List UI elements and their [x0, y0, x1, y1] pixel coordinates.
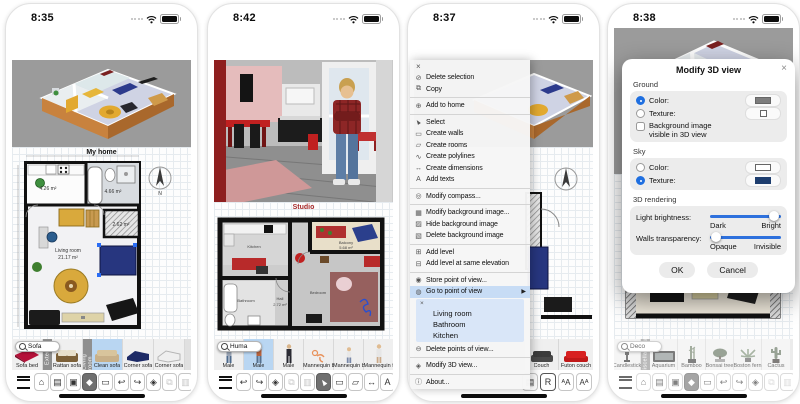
catalog-item-couch[interactable]: Couch	[525, 339, 559, 370]
plan-title: Studio	[214, 204, 393, 211]
kitchen-area-label: 4.26 m²	[40, 186, 57, 192]
battery-icon	[762, 14, 781, 24]
delete-selection-icon: ⊘	[414, 74, 423, 82]
catalog-item-label: Sofa bed	[16, 363, 38, 369]
undo-icon[interactable]: ↩	[716, 373, 731, 391]
phone-screenshot-3: 8:37 Couch	[407, 3, 600, 402]
bottom-toolbar: ⌂ ▤ ▣ ◆ ▭ ↩ ↪ ◈ ⧉ ▥	[12, 371, 191, 393]
menu-item-create-rooms[interactable]: ▱Create rooms	[410, 140, 530, 152]
menu-item-delete-points-of-view[interactable]: ⊖Delete points of view...	[410, 344, 530, 356]
sky-texture-radio[interactable]	[636, 176, 645, 185]
catalog-item-mannequin-baby[interactable]: Mannequin baby	[304, 339, 334, 370]
increase-text-size-icon[interactable]: Aᴬ	[576, 373, 592, 391]
catalog-item-label: Male	[223, 363, 235, 369]
catalog-item-corner-sofa-white[interactable]: Corner sofa	[154, 339, 185, 370]
ground-section: Color: Texture: Background image visible…	[630, 91, 787, 142]
clock: 8:35	[31, 12, 54, 24]
photo-icon[interactable]: ▣	[668, 373, 683, 391]
sky-color-swatch	[755, 164, 771, 171]
redo-icon[interactable]: ↪	[252, 373, 267, 391]
paste-icon: ▥	[300, 373, 315, 391]
futon-couch-thumbnail	[563, 344, 589, 363]
create-rooms-icon[interactable]: ▱	[348, 373, 363, 391]
home-indicator[interactable]	[59, 394, 145, 398]
menu-item-hide-background-image[interactable]: ▨Hide background image	[410, 219, 530, 231]
catalog-item-mannequin-female[interactable]: Mannequin female	[364, 339, 393, 370]
status-bar: 8:37	[408, 11, 599, 27]
menu-item-label: Create dimensions	[426, 165, 483, 172]
text-style-icon[interactable]: R	[540, 373, 556, 391]
status-bar: 8:42	[208, 11, 399, 27]
catalog-item-cactus[interactable]: Cactus	[762, 339, 790, 370]
context-menu: × ⊘Delete selection ⧉Copy ⊕Add to home ▲…	[410, 60, 530, 389]
3d-room-render	[214, 60, 392, 202]
cancel-button[interactable]: Cancel	[707, 262, 757, 278]
cactus-thumbnail	[770, 344, 782, 363]
mannequin-female-thumbnail	[374, 344, 384, 363]
bonsai-tree-thumbnail	[711, 344, 729, 363]
dialog-close-icon[interactable]: ×	[781, 64, 787, 74]
floor-plan-drawing: N 4.26 m² 4.66 m² 2.62 m² Living room 21…	[12, 147, 190, 339]
menu-item-add-texts[interactable]: AAdd texts	[410, 174, 530, 186]
transparency-max-label: Invisible	[754, 242, 781, 251]
clock: 8:38	[633, 12, 656, 24]
menu-item-create-walls[interactable]: ▭Create walls	[410, 128, 530, 140]
modify-3d-view-dialog: Modify 3D view × Ground Color: Texture: …	[622, 59, 795, 293]
wifi-icon	[348, 15, 359, 24]
ground-texture-swatch	[760, 110, 767, 117]
create-rooms-icon: ▱	[414, 141, 423, 149]
menu-separator	[410, 272, 530, 273]
furniture-catalog: Sofa Sofa bed Exterior Rattan sofa Livin…	[12, 339, 191, 370]
menu-item-label: Store point of view...	[426, 277, 487, 284]
cellular-signal-icon	[533, 18, 546, 20]
search-icon	[621, 343, 628, 350]
clock: 8:42	[233, 12, 256, 24]
wifi-icon	[548, 15, 559, 24]
catalog-item-futon-couch[interactable]: Futon couch	[559, 339, 593, 370]
delete-background-image-icon: ▧	[414, 232, 423, 240]
status-bar: 8:38	[608, 11, 799, 27]
menu-separator	[410, 244, 530, 245]
app-store-screenshots: 8:35 My home	[0, 0, 800, 404]
menu-icon[interactable]	[13, 373, 33, 391]
menu-item-about[interactable]: ⓘAbout...	[410, 377, 530, 389]
create-dimensions-icon: ↔	[414, 165, 423, 172]
catalog-item-label: Bonsai tree	[706, 363, 734, 369]
catalog-item-label: Male	[283, 363, 295, 369]
clean-sofa-thumbnail	[94, 344, 120, 363]
catalog-item-label: Couch	[534, 363, 550, 369]
delete-points-of-view-icon: ⊖	[414, 345, 423, 353]
balcony-area-label: 5.68 m²	[339, 245, 353, 250]
add-texts-icon: A	[414, 176, 423, 183]
home-indicator[interactable]	[261, 394, 347, 398]
menu-item-delete-selection[interactable]: ⊘Delete selection	[410, 72, 530, 84]
floor-plan-view[interactable]: My home	[12, 147, 191, 339]
ground-section-label: Ground	[633, 80, 787, 89]
sky-texture-swatch	[755, 177, 771, 184]
bedroom-label: Bedroom	[310, 290, 327, 295]
menu-item-label: Go to point of view	[426, 288, 482, 295]
home-indicator[interactable]	[461, 394, 547, 398]
catalog-item-bonsai-tree[interactable]: Bonsai tree	[706, 339, 734, 370]
wifi-icon	[146, 15, 157, 24]
sky-texture-label: Texture:	[649, 176, 676, 185]
import-background-image-icon[interactable]: ▤	[652, 373, 667, 391]
go-to-point-of-view-icon: ◍	[414, 288, 423, 296]
compass-label: N	[158, 191, 162, 197]
paste-icon: ▥	[780, 373, 793, 391]
modify-compass-icon: ◎	[414, 192, 423, 200]
battery-icon	[362, 14, 381, 24]
brightness-min-label: Dark	[710, 221, 726, 230]
about-icon: ⓘ	[414, 377, 423, 387]
menu-item-delete-background-image[interactable]: ▧Delete background image	[410, 230, 530, 242]
decrease-text-size-icon[interactable]: ᴬA	[558, 373, 574, 391]
home-indicator[interactable]	[661, 394, 747, 398]
catalog-item-label: Male	[253, 363, 265, 369]
battery-icon	[562, 14, 581, 24]
corner-sofa-navy-thumbnail	[125, 344, 151, 363]
catalog-item-label: Futon couch	[561, 363, 591, 369]
mannequin-baby-thumbnail	[311, 344, 327, 363]
sky-color-label: Color:	[649, 163, 669, 172]
menu-item-create-dimensions[interactable]: ↔Create dimensions	[410, 163, 530, 175]
catalog-item-label: Candlestick	[614, 363, 641, 369]
copy-icon: ⧉	[284, 373, 299, 391]
ground-color-swatch	[755, 97, 771, 104]
brightness-max-label: Bright	[761, 221, 781, 230]
menu-separator	[410, 114, 530, 115]
menu-separator	[410, 204, 530, 205]
menu-item-add-to-home[interactable]: ⊕Add to home	[410, 100, 530, 112]
rendering-section: Light brightness: Dark Bright Walls tran…	[630, 206, 787, 255]
menu-separator	[410, 374, 530, 375]
floor-plan-drawing: Kitchen Bathroom Hall 2.72 m² Bedroom Ba…	[214, 202, 392, 339]
hide-background-image-icon: ▨	[414, 220, 423, 228]
add-texts-icon[interactable]: A	[380, 373, 393, 391]
living-room-area-label: 21.17 m²	[58, 255, 78, 261]
cellular-signal-icon	[733, 18, 746, 20]
ok-button[interactable]: OK	[659, 262, 695, 278]
add-to-home-icon: ⊕	[414, 102, 423, 110]
search-text: Deco	[630, 343, 645, 350]
menu-item-modify-compass[interactable]: ◎Modify compass...	[410, 191, 530, 203]
redo-icon[interactable]: ↪	[130, 373, 145, 391]
status-bar: 8:35	[6, 11, 197, 27]
catalog-item-clean-sofa[interactable]: Clean sofa	[92, 339, 123, 370]
catalog-item-mannequin-boy[interactable]: Mannequin boy	[334, 339, 364, 370]
modify-background-image-icon: ▦	[414, 209, 423, 217]
search-icon	[19, 343, 26, 350]
textures-icon[interactable]: ◈	[146, 373, 161, 391]
phone-screenshot-2: 8:42	[207, 3, 400, 402]
kitchen-label: Kitchen	[247, 244, 260, 249]
menu-item-label: Create walls	[426, 130, 463, 137]
textures-icon[interactable]: ◈	[268, 373, 283, 391]
ground-texture-swatch-button[interactable]	[745, 107, 781, 120]
catalog-item-bamboo[interactable]: Bamboo	[678, 339, 706, 370]
clock: 8:37	[433, 12, 456, 24]
transparency-slider[interactable]	[710, 236, 781, 239]
catalog-item-label: Rattan sofa	[53, 363, 81, 369]
catalog-item-label: Corner sofa	[155, 363, 184, 369]
catalog-item-label: Aquarium	[652, 363, 676, 369]
bottom-toolbar: ⌂ ▤ ▣ ◆ ▭ ↩ ↪ ◈ ⧉ ▥	[614, 371, 793, 393]
phone-screenshot-1: 8:35 My home	[5, 3, 198, 402]
ground-texture-radio[interactable]	[636, 109, 645, 118]
background-image-checkbox[interactable]	[636, 122, 645, 131]
background-image-label: Background image visible in 3D view	[649, 122, 712, 139]
bamboo-thumbnail	[686, 344, 698, 363]
hall-label: Hall	[277, 296, 284, 301]
cellular-signal-icon	[131, 18, 144, 20]
bottom-toolbar: ↩ ↪ ◈ ⧉ ▥ ▲ ▭ ▱ ↔ A	[214, 371, 393, 393]
create-polylines-icon: ∿	[414, 153, 423, 161]
couch-thumbnail	[529, 344, 555, 363]
menu-item-copy[interactable]: ⧉Copy	[410, 84, 530, 96]
furniture-catalog: Deco Candlestick Miscellaneous Aquarium …	[614, 339, 793, 370]
undo-icon[interactable]: ↩	[236, 373, 251, 391]
modify-3d-view-icon: ◈	[414, 362, 423, 370]
transparency-slider-thumb[interactable]	[711, 232, 721, 242]
3d-home-render	[12, 60, 190, 147]
observer-view-icon[interactable]: ▭	[700, 373, 715, 391]
menu-item-label: Copy	[426, 86, 442, 93]
submenu-close-icon[interactable]: ×	[416, 300, 524, 308]
hall-area-label: 2.72 m²	[273, 302, 287, 307]
brightness-slider-thumb[interactable]	[769, 211, 779, 221]
menu-item-label: Modify background image...	[426, 209, 509, 216]
virtual-visit-icon[interactable]: ◆	[684, 373, 699, 391]
menu-item-label: Delete points of view...	[426, 346, 494, 353]
ground-color-label: Color:	[649, 96, 669, 105]
observer-view-icon[interactable]: ▭	[98, 373, 113, 391]
sky-color-swatch-button[interactable]	[745, 161, 781, 174]
virtual-visit-icon[interactable]: ◆	[82, 373, 97, 391]
catalog-item-label: Mannequin boy	[333, 363, 364, 369]
bathroom-area-label: 4.66 m²	[105, 189, 122, 195]
plan-title: My home	[12, 149, 191, 156]
phone-screenshot-4: 8:38	[607, 3, 800, 402]
catalog-item-label: Corner sofa	[124, 363, 153, 369]
furniture-catalog: Huma Male Male Male Mannequin baby Manne…	[214, 339, 393, 370]
dialog-title: Modify 3D view	[630, 65, 787, 75]
menu-separator	[410, 188, 530, 189]
menu-item-modify-3d-view[interactable]: ◈Modify 3D view...	[410, 360, 530, 372]
menu-item-label: About...	[426, 379, 449, 386]
copy-icon: ⧉	[162, 373, 177, 391]
menu-item-go-to-point-of-view[interactable]: ◍Go to point of view▶	[410, 286, 530, 298]
menu-item-label: Delete selection	[426, 74, 474, 81]
menu-icon[interactable]	[615, 373, 635, 391]
menu-item-label: Hide background image	[426, 221, 498, 228]
redo-icon[interactable]: ↪	[732, 373, 747, 391]
menu-separator	[410, 357, 530, 358]
floor-plan-view[interactable]: Studio	[214, 202, 393, 339]
3d-aerial-view[interactable]	[12, 60, 191, 147]
corner-sofa-white-thumbnail	[156, 344, 182, 363]
menu-item-label: Delete background image	[426, 232, 503, 239]
catalog-search-field[interactable]: Sofa	[15, 341, 60, 352]
boston-fern-thumbnail	[739, 344, 757, 363]
menu-item-select[interactable]: ▲Select	[410, 117, 530, 129]
menu-separator	[410, 97, 530, 98]
menu-item-label: Add level	[426, 249, 454, 256]
photo-icon[interactable]: ▣	[66, 373, 81, 391]
submenu-item-bathroom[interactable]: Bathroom	[416, 319, 524, 330]
brightness-label: Light brightness:	[636, 211, 706, 230]
catalog-item-label: Bamboo	[681, 363, 702, 369]
mannequin-boy-thumbnail	[344, 344, 354, 363]
menu-item-modify-background-image[interactable]: ▦Modify background image...	[410, 207, 530, 219]
sky-color-radio[interactable]	[636, 163, 645, 172]
menu-close-icon[interactable]: ×	[410, 62, 530, 72]
search-text: Sofa	[28, 343, 41, 350]
submenu-item-kitchen[interactable]: Kitchen	[416, 330, 524, 341]
copy-icon: ⧉	[414, 85, 423, 93]
3d-walkthrough-view[interactable]	[214, 60, 393, 202]
menu-item-label: Add level at same elevation	[426, 260, 509, 267]
menu-item-create-polylines[interactable]: ∿Create polylines	[410, 151, 530, 163]
create-walls-icon[interactable]: ▭	[332, 373, 347, 391]
battery-icon	[160, 14, 179, 24]
select-icon[interactable]: ▲	[316, 373, 331, 391]
menu-item-label: Add to home	[426, 102, 465, 109]
cellular-signal-icon	[333, 18, 346, 20]
ground-texture-label: Texture:	[649, 109, 676, 118]
catalog-item-boston-fern[interactable]: Boston fern	[734, 339, 762, 370]
paste-icon: ▥	[178, 373, 191, 391]
closet-area-label: 2.62 m²	[113, 222, 130, 228]
brightness-slider[interactable]	[710, 215, 781, 218]
bathroom-label: Bathroom	[237, 298, 255, 303]
transparency-label: Walls transparency:	[636, 232, 706, 251]
search-text: Huma	[230, 343, 247, 350]
menu-icon[interactable]	[215, 373, 235, 391]
catalog-item-male-3[interactable]: Male	[274, 339, 304, 370]
catalog-item-label: Mannequin baby	[303, 363, 334, 369]
menu-item-label: Select	[426, 119, 445, 126]
select-icon: ▲	[414, 119, 423, 126]
catalog-item-label: Clean sofa	[94, 363, 120, 369]
add-level-icon: ⊞	[414, 248, 423, 256]
aerial-view-icon[interactable]: ⌂	[636, 373, 651, 391]
ground-color-swatch-button[interactable]	[745, 94, 781, 107]
ground-color-radio[interactable]	[636, 96, 645, 105]
catalog-search-field[interactable]: Deco	[617, 341, 662, 352]
catalog-item-label: Cactus	[767, 363, 784, 369]
menu-item-add-level-same-elevation[interactable]: ⊟Add level at same elevation	[410, 258, 530, 270]
copy-icon: ⧉	[764, 373, 779, 391]
wifi-icon	[748, 15, 759, 24]
menu-item-add-level[interactable]: ⊞Add level	[410, 247, 530, 259]
store-point-of-view-icon: ◉	[414, 276, 423, 284]
search-icon	[221, 343, 228, 350]
points-of-view-submenu: × Living room Bathroom Kitchen	[416, 299, 524, 342]
sky-section: Color: Texture:	[630, 158, 787, 190]
submenu-item-living-room[interactable]: Living room	[416, 308, 524, 319]
create-walls-icon: ▭	[414, 130, 423, 138]
catalog-item-corner-sofa-navy[interactable]: Corner sofa	[123, 339, 154, 370]
sky-section-label: Sky	[633, 147, 787, 156]
category-tab-living-room[interactable]: Living room	[83, 339, 92, 370]
catalog-item-label: Boston fern	[733, 363, 761, 369]
transparency-min-label: Opaque	[710, 242, 737, 251]
menu-item-label: Create polylines	[426, 153, 475, 160]
sky-texture-swatch-button[interactable]	[745, 174, 781, 187]
menu-item-label: Add texts	[426, 176, 454, 183]
catalog-item-label: Mannequin female	[364, 363, 394, 369]
undo-icon[interactable]: ↩	[114, 373, 129, 391]
catalog-search-field[interactable]: Huma	[217, 341, 262, 352]
menu-item-label: Modify compass...	[426, 193, 481, 200]
menu-item-label: Modify 3D view...	[426, 362, 477, 369]
living-room-label: Living room	[55, 248, 81, 254]
create-dimensions-icon[interactable]: ↔	[364, 373, 379, 391]
male-figure-thumbnail	[284, 344, 294, 363]
menu-item-store-point-of-view[interactable]: ◉Store point of view...	[410, 275, 530, 287]
menu-item-label: Create rooms	[426, 142, 467, 149]
add-level-same-elevation-icon: ⊟	[414, 260, 423, 268]
aerial-view-icon[interactable]: ⌂	[34, 373, 49, 391]
rendering-section-label: 3D rendering	[633, 195, 787, 204]
submenu-arrow-icon: ▶	[521, 288, 526, 295]
import-background-image-icon[interactable]: ▤	[50, 373, 65, 391]
textures-icon[interactable]: ◈	[748, 373, 763, 391]
